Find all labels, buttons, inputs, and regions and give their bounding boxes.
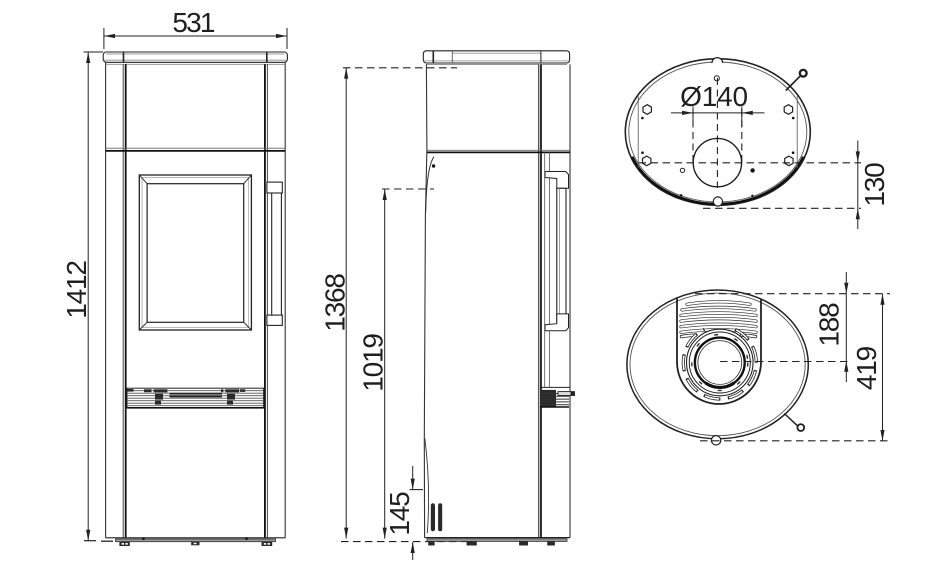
svg-text:1412: 1412	[61, 261, 92, 319]
svg-text:1019: 1019	[358, 334, 389, 392]
svg-text:188: 188	[814, 303, 845, 347]
svg-text:419: 419	[851, 346, 882, 390]
svg-text:531: 531	[172, 7, 215, 38]
svg-text:130: 130	[859, 163, 890, 207]
svg-text:145: 145	[384, 492, 415, 536]
svg-text:Ø140: Ø140	[680, 81, 748, 112]
